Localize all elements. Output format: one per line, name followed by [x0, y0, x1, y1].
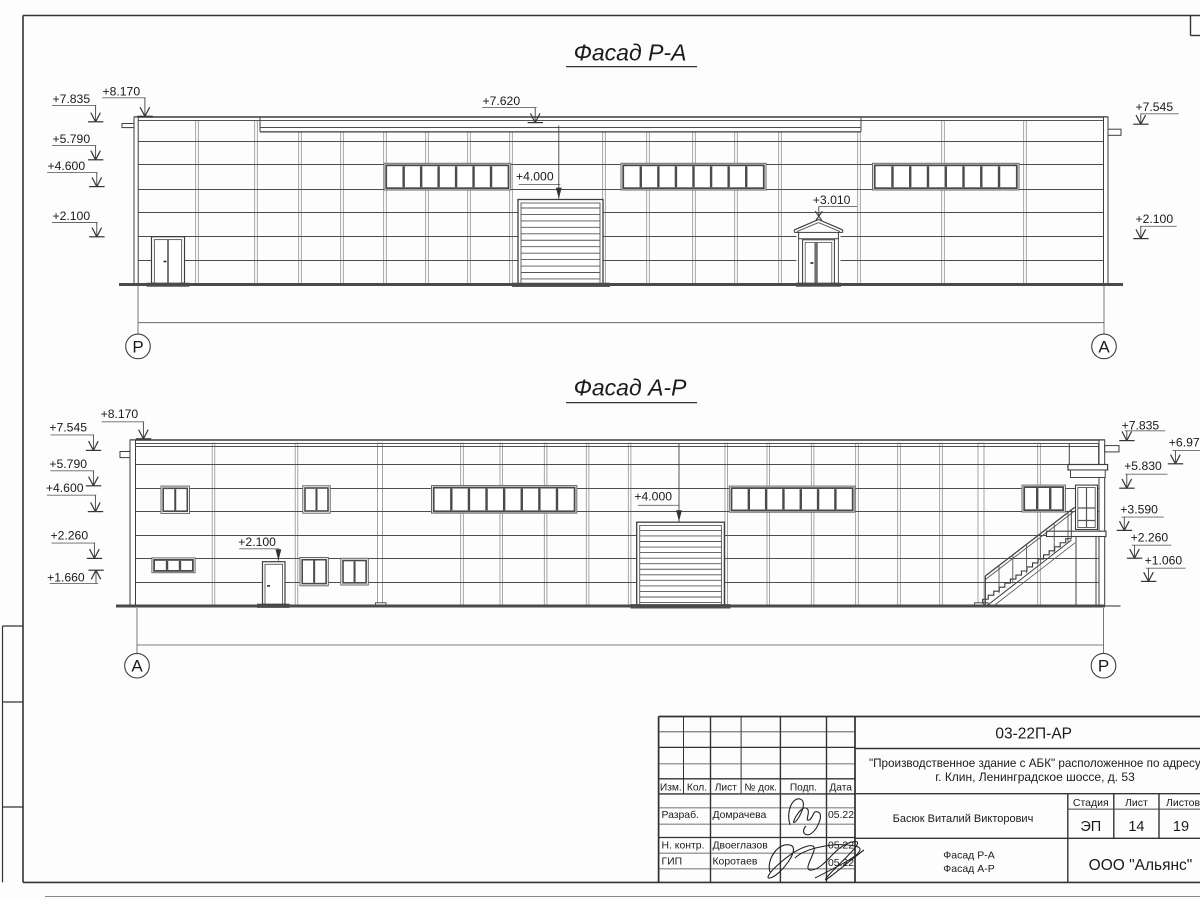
svg-text:05.22: 05.22: [828, 810, 854, 821]
svg-text:Р: Р: [132, 337, 143, 356]
svg-text:Двоеглазов: Двоеглазов: [713, 841, 769, 852]
svg-text:14: 14: [1128, 819, 1144, 835]
svg-text:ООО "Альянс": ООО "Альянс": [1089, 857, 1193, 874]
svg-text:+8.170: +8.170: [103, 84, 141, 98]
svg-text:Р: Р: [1098, 657, 1109, 676]
svg-text:Кол.: Кол.: [687, 782, 707, 793]
svg-text:Домрачева: Домрачева: [713, 810, 767, 821]
svg-text:+2.260: +2.260: [1131, 530, 1169, 544]
svg-text:+6.97: +6.97: [1169, 436, 1200, 450]
svg-text:Фасад А-Р: Фасад А-Р: [574, 375, 687, 401]
svg-text:+2.260: +2.260: [51, 529, 89, 543]
svg-text:19: 19: [1173, 819, 1189, 835]
svg-text:+3.590: +3.590: [1120, 502, 1158, 516]
svg-text:+2.100: +2.100: [238, 535, 276, 549]
svg-text:+5.830: +5.830: [1124, 459, 1162, 473]
svg-text:+4.600: +4.600: [46, 481, 84, 495]
svg-text:+1.660: +1.660: [47, 571, 85, 585]
svg-text:Коротаев: Коротаев: [713, 857, 758, 868]
svg-text:+5.790: +5.790: [49, 457, 87, 471]
svg-text:Разраб.: Разраб.: [662, 809, 699, 821]
svg-text:+2.100: +2.100: [1136, 212, 1174, 226]
svg-text:Стадия: Стадия: [1073, 797, 1109, 809]
svg-text:+4.000: +4.000: [634, 490, 672, 504]
svg-text:+5.790: +5.790: [53, 132, 91, 146]
svg-text:+7.620: +7.620: [483, 94, 521, 108]
svg-text:А: А: [131, 657, 143, 676]
svg-text:+4.600: +4.600: [48, 159, 86, 173]
svg-text:+3.010: +3.010: [813, 193, 851, 207]
svg-text:г. Клин, Ленинградское шоссе,: г. Клин, Ленинградское шоссе, д. 53: [935, 770, 1135, 784]
svg-text:+8.170: +8.170: [101, 407, 139, 421]
svg-text:Подп.: Подп.: [790, 782, 817, 793]
svg-text:+4.000: +4.000: [516, 169, 554, 183]
svg-text:Фасад А-Р: Фасад А-Р: [943, 863, 994, 875]
svg-text:+7.835: +7.835: [1122, 418, 1160, 432]
svg-text:Изм.: Изм.: [660, 782, 682, 793]
svg-text:Листов: Листов: [1166, 797, 1200, 809]
svg-text:ГИП: ГИП: [662, 857, 683, 868]
svg-text:+7.545: +7.545: [49, 420, 87, 434]
svg-text:Н. контр.: Н. контр.: [662, 841, 705, 852]
svg-text:03-22П-АР: 03-22П-АР: [995, 726, 1072, 743]
svg-text:Лист: Лист: [715, 782, 737, 793]
svg-text:Фасад Р-А: Фасад Р-А: [943, 850, 994, 862]
svg-text:Басюк Виталий Викторович: Басюк Виталий Викторович: [893, 813, 1034, 825]
svg-text:+1.060: +1.060: [1145, 553, 1183, 567]
svg-text:+2.100: +2.100: [53, 209, 91, 223]
svg-text:А: А: [1098, 337, 1110, 356]
svg-text:Дата: Дата: [829, 782, 852, 793]
svg-text:ЭП: ЭП: [1080, 819, 1101, 835]
svg-text:Фасад Р-А: Фасад Р-А: [574, 40, 687, 66]
svg-text:+7.545: +7.545: [1136, 100, 1174, 114]
svg-text:"Производственное здание с АБК: "Производственное здание с АБК" располож…: [869, 757, 1200, 770]
svg-text:Лист: Лист: [1125, 797, 1148, 809]
svg-text:+7.835: +7.835: [53, 92, 91, 106]
svg-text:№ док.: № док.: [744, 782, 777, 793]
